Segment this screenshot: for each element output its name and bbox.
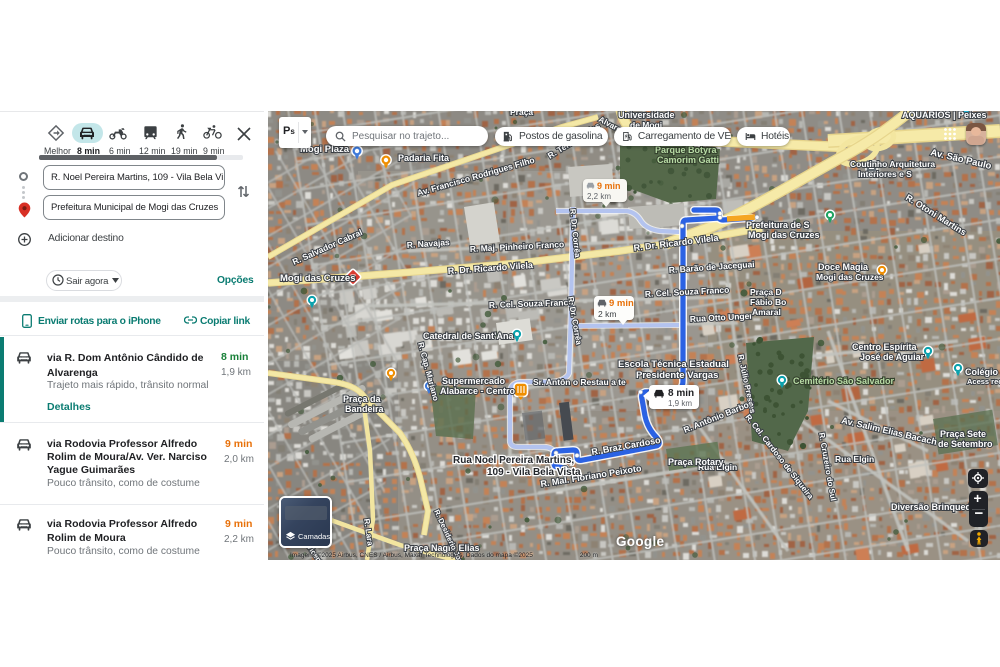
svg-text:Prefeitura de S: Prefeitura de S xyxy=(746,220,810,230)
svg-text:Praça: Praça xyxy=(510,111,533,117)
svg-text:Praça da: Praça da xyxy=(343,394,382,404)
svg-text:Praça D: Praça D xyxy=(750,287,782,297)
svg-text:Rua Elgin: Rua Elgin xyxy=(835,454,874,464)
svg-text:Universidade: Universidade xyxy=(618,111,675,120)
svg-text:Mogi das Cruzes: Mogi das Cruzes xyxy=(748,230,820,240)
svg-text:Interiores e S: Interiores e S xyxy=(858,169,912,179)
svg-text:de Setembro: de Setembro xyxy=(938,439,993,449)
svg-text:AQUARIOS | Peixes: AQUARIOS | Peixes xyxy=(902,111,987,120)
svg-text:Diversão Brinqued: Diversão Brinqued xyxy=(891,502,971,512)
svg-text:Escola Técnica Estadual: Escola Técnica Estadual xyxy=(618,359,729,370)
svg-text:Praça Rotary: Praça Rotary xyxy=(668,457,724,467)
svg-text:Mogi das Cruzes: Mogi das Cruzes xyxy=(280,273,356,284)
svg-text:Mogi das Cruzes: Mogi das Cruzes xyxy=(816,272,884,282)
svg-text:Centro Espírita: Centro Espírita xyxy=(852,342,918,352)
svg-text:Colégio Sã: Colégio Sã xyxy=(965,367,1000,377)
svg-text:Cemitério São Salvador: Cemitério São Salvador xyxy=(793,376,895,386)
svg-text:Alabarce - Centro: Alabarce - Centro xyxy=(440,386,516,396)
svg-text:Doce Magia: Doce Magia xyxy=(818,262,869,272)
svg-text:Amaral: Amaral xyxy=(752,307,781,317)
svg-text:Sr. Antôn o Restau a te: Sr. Antôn o Restau a te xyxy=(533,377,626,387)
svg-text:Coutinho Arquitetura: Coutinho Arquitetura xyxy=(850,159,935,169)
svg-text:Presidente Vargas: Presidente Vargas xyxy=(636,370,718,381)
svg-text:Bandeira: Bandeira xyxy=(345,404,385,414)
svg-text:109 - Vila Bela Vista: 109 - Vila Bela Vista xyxy=(487,467,581,478)
svg-text:Camorim Gatti: Camorim Gatti xyxy=(657,155,719,165)
svg-text:Praça Sete: Praça Sete xyxy=(940,429,986,439)
svg-text:Catedral de Sant’Ana: Catedral de Sant’Ana xyxy=(423,331,515,341)
svg-text:Parque Botyra: Parque Botyra xyxy=(655,145,718,155)
svg-text:José de Aguiar: José de Aguiar xyxy=(860,352,925,362)
svg-text:Padaria Fita: Padaria Fita xyxy=(398,153,450,163)
svg-text:Rua Noel Pereira Martins,: Rua Noel Pereira Martins, xyxy=(453,455,574,466)
svg-text:Acess recent: Acess recent xyxy=(967,377,1000,386)
svg-text:Fábio Bo: Fábio Bo xyxy=(750,297,786,307)
svg-text:Supermercado: Supermercado xyxy=(442,376,506,386)
